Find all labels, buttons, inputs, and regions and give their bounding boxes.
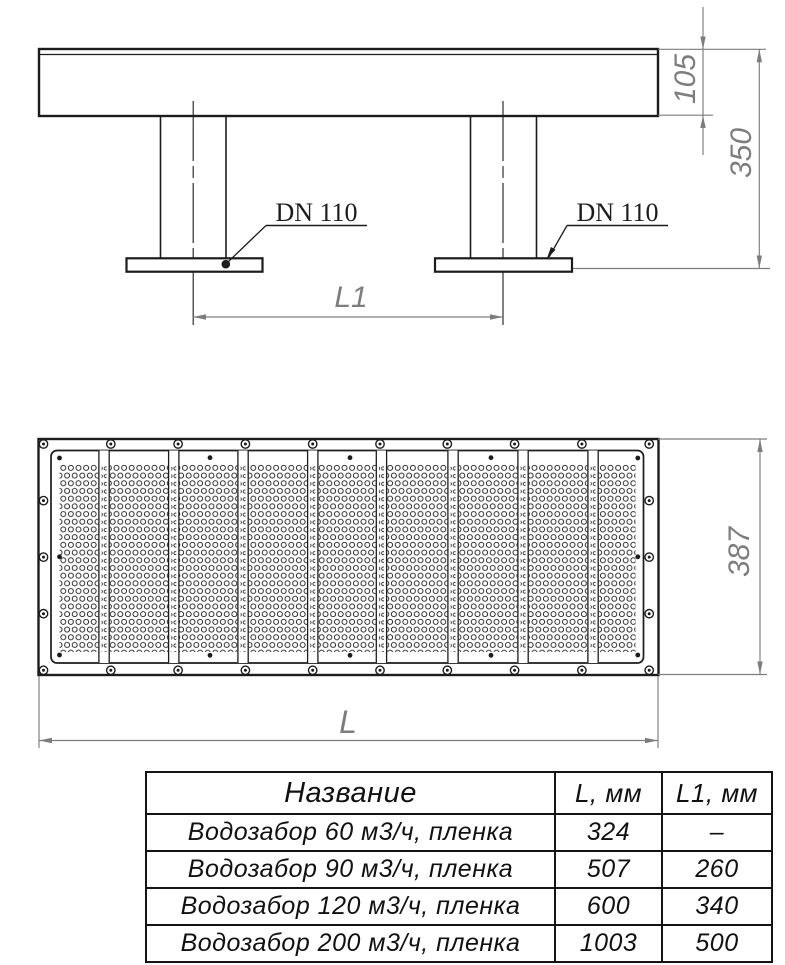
dim-387-arrow-top bbox=[757, 439, 762, 452]
row-name: Водозабор 90 м3/ч, пленка bbox=[146, 851, 555, 888]
dim-l1-text: L1 bbox=[311, 283, 391, 313]
spec-table-header-row: Название L, мм L1, мм bbox=[146, 772, 772, 814]
table-row: Водозабор 60 м3/ч, пленка 324 – bbox=[146, 814, 772, 851]
dim-350-arrow-bottom bbox=[757, 256, 762, 269]
row-name: Водозабор 60 м3/ч, пленка bbox=[146, 814, 555, 851]
row-l1-value: 340 bbox=[662, 888, 772, 925]
row-l-value: 324 bbox=[555, 814, 662, 851]
right-flange bbox=[435, 258, 572, 271]
dim-l1-arrow-left bbox=[193, 314, 206, 320]
col-header-l1: L1, мм bbox=[662, 772, 772, 814]
row-l-value: 1003 bbox=[555, 925, 662, 962]
row-l1-value: – bbox=[662, 814, 772, 851]
spec-table: Название L, мм L1, мм Водозабор 60 м3/ч,… bbox=[145, 771, 773, 963]
dim-l-text: L bbox=[308, 706, 388, 738]
row-l1-value: 500 bbox=[662, 925, 772, 962]
plan-view bbox=[39, 439, 768, 748]
dim-l1-arrow-right bbox=[490, 314, 503, 320]
row-name: Водозабор 200 м3/ч, пленка bbox=[146, 925, 555, 962]
row-name: Водозабор 120 м3/ч, пленка bbox=[146, 888, 555, 925]
perforation-field bbox=[60, 464, 636, 652]
row-l-value: 600 bbox=[555, 888, 662, 925]
table-row: Водозабор 200 м3/ч, пленка 1003 500 bbox=[146, 925, 772, 962]
left-flange bbox=[127, 258, 263, 271]
row-l1-value: 260 bbox=[662, 851, 772, 888]
dim-387-arrow-bottom bbox=[757, 662, 762, 675]
technical-drawing-page: { "drawing": { "side_view": { "dn_label_… bbox=[0, 0, 785, 965]
dim-350-text: 350 bbox=[726, 103, 758, 203]
dn-label-right: DN 110 bbox=[567, 200, 668, 226]
row-l-value: 507 bbox=[555, 851, 662, 888]
dim-387-text: 387 bbox=[724, 502, 756, 602]
dn-label-left: DN 110 bbox=[266, 200, 367, 226]
dim-350-arrow-top bbox=[757, 49, 762, 62]
side-view bbox=[39, 7, 770, 326]
dim-l-arrow-left bbox=[39, 738, 52, 743]
table-row: Водозабор 120 м3/ч, пленка 600 340 bbox=[146, 888, 772, 925]
leader-dot bbox=[222, 260, 231, 269]
dim-105-text: 105 bbox=[670, 29, 702, 129]
col-header-l: L, мм bbox=[555, 772, 662, 814]
dim-l-arrow-right bbox=[645, 738, 658, 743]
intake-body bbox=[39, 49, 658, 116]
col-header-name: Название bbox=[146, 772, 555, 814]
table-row: Водозабор 90 м3/ч, пленка 507 260 bbox=[146, 851, 772, 888]
dn-leader-right bbox=[547, 226, 669, 260]
